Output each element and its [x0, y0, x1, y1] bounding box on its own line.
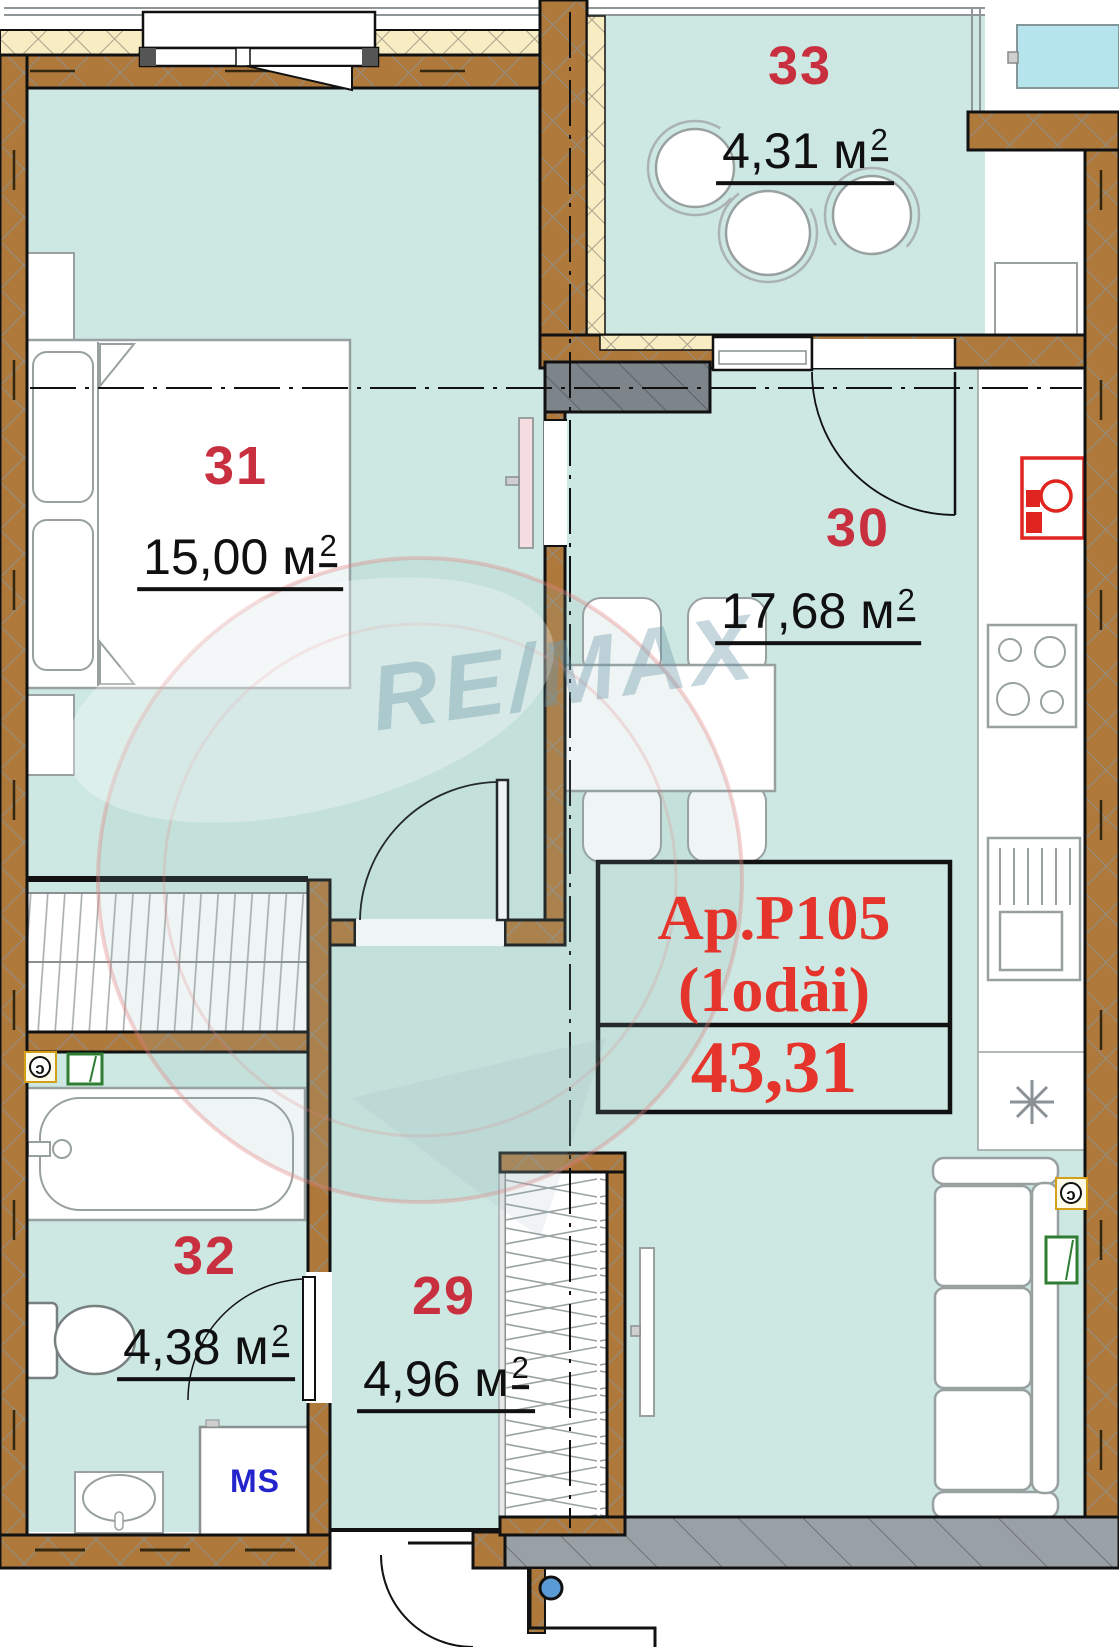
sofa	[933, 1158, 1058, 1518]
svg-text:ɔ: ɔ	[35, 1059, 44, 1078]
stove	[988, 625, 1076, 727]
washbasin	[75, 1472, 163, 1533]
room-30-area: 17,68 м2	[715, 584, 921, 636]
sofa-cushion	[935, 1288, 1031, 1388]
kitchen-window	[713, 337, 812, 370]
kitchen-sink	[988, 838, 1080, 980]
sofa-cushion	[935, 1186, 1031, 1286]
socket-icon: ɔ	[25, 1052, 56, 1082]
neighbour-glazing	[1017, 25, 1119, 88]
room-32-number: 32	[173, 1229, 237, 1283]
door-leaf	[519, 418, 533, 548]
washing-machine-label: MS	[230, 1465, 280, 1497]
nightstand	[22, 253, 74, 342]
room-32-area: 4,38 м2	[117, 1320, 295, 1372]
room-30-number: 30	[826, 501, 890, 555]
balcony-table	[726, 191, 810, 275]
room-31-area: 15,00 м2	[137, 530, 343, 582]
balcony-right-wall	[968, 112, 1119, 150]
room-31-number: 31	[204, 439, 268, 493]
room-29-area: 4,96 м2	[357, 1352, 535, 1404]
room-33-area: 4,31 м2	[716, 124, 894, 176]
column-marker	[540, 1577, 562, 1599]
room-33-number: 33	[768, 39, 832, 93]
pillow	[33, 520, 93, 670]
balcony-chair	[833, 176, 911, 254]
wardrobe-wall	[607, 1172, 625, 1517]
pillow	[33, 352, 93, 502]
door-leaf	[303, 1277, 315, 1400]
nightstand	[22, 695, 74, 775]
balcony-left-wall	[540, 0, 587, 362]
balcony-left-insulation	[587, 16, 605, 340]
floor-plan-drawing: ɔ ɔ	[0, 0, 1119, 1647]
radiator-icon	[68, 1054, 102, 1084]
kitchen-boiler	[1022, 458, 1094, 538]
room-29-number: 29	[412, 1269, 476, 1323]
radiator-icon	[1046, 1237, 1077, 1283]
door-handle	[506, 477, 519, 485]
unit-name: Ap.P105	[658, 886, 891, 950]
sofa-cushion	[935, 1390, 1031, 1490]
floor-plan: ɔ ɔ RE/MAX 33 3	[0, 0, 1119, 1647]
unit-total-area: 43,31	[691, 1031, 858, 1105]
hallway-wardrobe	[499, 1172, 607, 1517]
unit-rooms: (1odăi)	[678, 958, 870, 1022]
svg-text:ɔ: ɔ	[1066, 1185, 1075, 1204]
kitchen	[978, 368, 1094, 1150]
socket-icon: ɔ	[1056, 1178, 1087, 1209]
